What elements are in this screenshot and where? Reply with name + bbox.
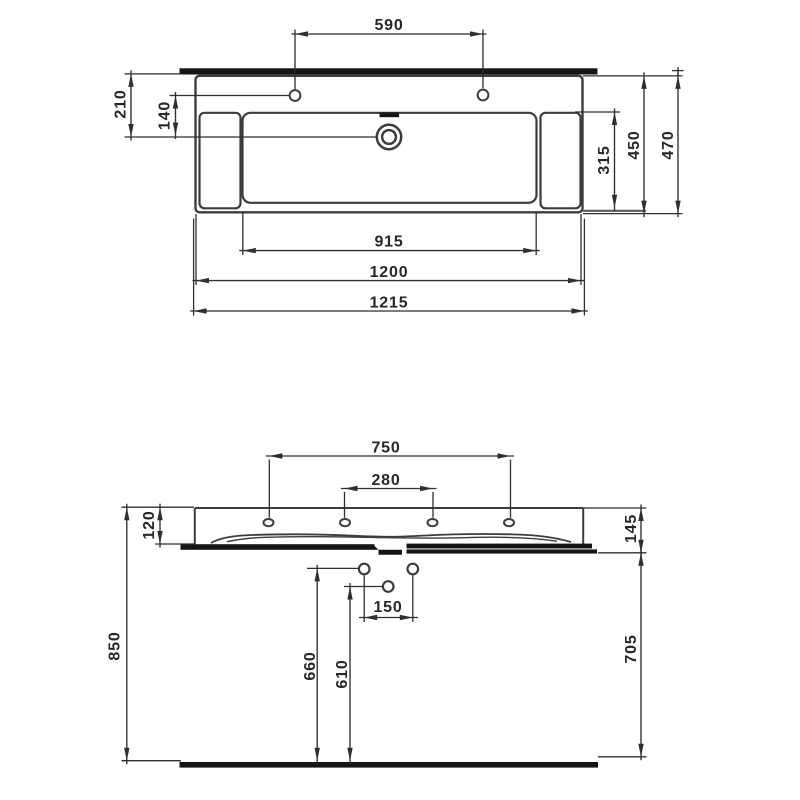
svg-text:1200: 1200 [370, 264, 409, 281]
svg-text:145: 145 [623, 514, 640, 543]
svg-text:280: 280 [371, 472, 400, 489]
svg-text:210: 210 [112, 89, 129, 118]
svg-text:660: 660 [302, 651, 319, 680]
svg-text:450: 450 [626, 130, 643, 159]
svg-text:1215: 1215 [370, 294, 409, 311]
svg-text:750: 750 [371, 439, 400, 456]
svg-text:590: 590 [374, 17, 403, 34]
svg-text:705: 705 [623, 634, 640, 663]
svg-text:850: 850 [106, 631, 123, 660]
svg-text:120: 120 [141, 510, 158, 539]
svg-text:915: 915 [374, 234, 403, 251]
svg-text:140: 140 [156, 101, 173, 130]
svg-text:470: 470 [660, 130, 677, 159]
svg-text:150: 150 [373, 599, 402, 616]
svg-text:610: 610 [334, 659, 351, 688]
svg-text:315: 315 [596, 145, 613, 174]
